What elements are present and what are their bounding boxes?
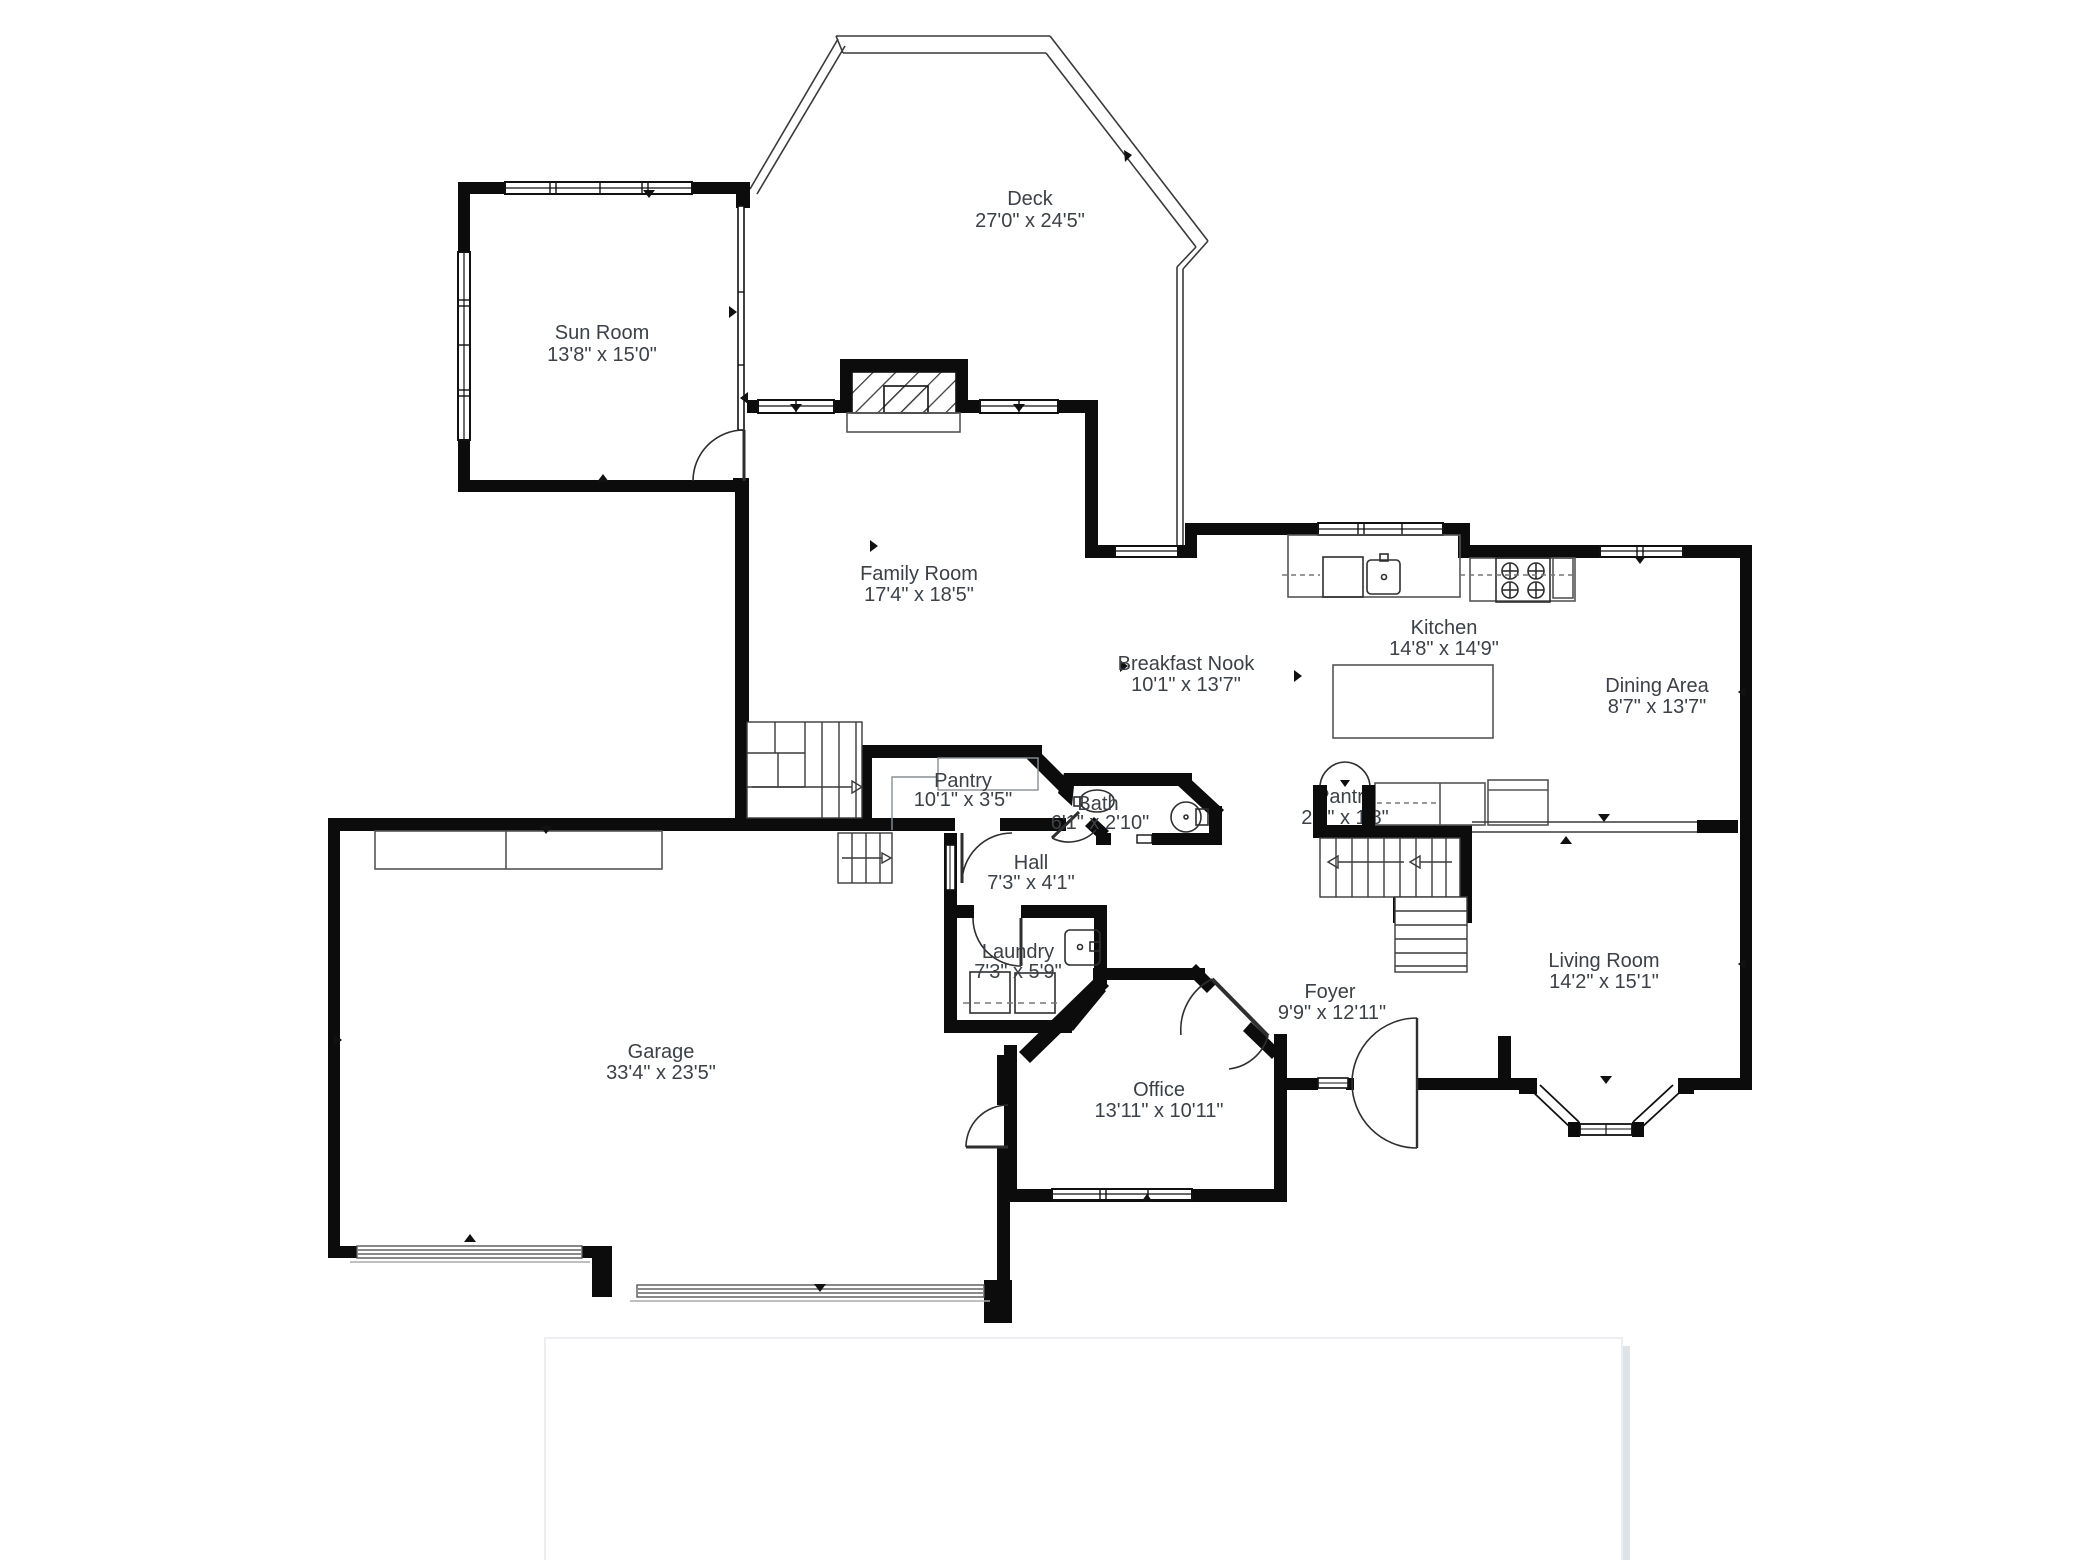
room-label-breakfast-nook: Breakfast Nook bbox=[1118, 653, 1256, 675]
room-dims-breakfast-nook: 10'1" x 13'7" bbox=[1131, 674, 1241, 696]
window-icon bbox=[1318, 523, 1443, 535]
refrigerator-icon bbox=[1488, 780, 1548, 825]
window-icon bbox=[1600, 546, 1683, 557]
room-label-laundry: Laundry bbox=[982, 941, 1054, 963]
bottom-card bbox=[545, 1338, 1630, 1560]
dishwasher-icon bbox=[1323, 557, 1363, 597]
room-dims-hall: 7'3" x 4'1" bbox=[987, 872, 1074, 894]
kitchen-island-icon bbox=[1333, 665, 1493, 738]
window-icon bbox=[505, 182, 692, 194]
double-door-icon bbox=[1181, 979, 1268, 1069]
room-label-garage: Garage bbox=[628, 1041, 695, 1063]
garage-doors bbox=[350, 1246, 990, 1301]
window-icon bbox=[1137, 835, 1152, 843]
room-labels: Deck 27'0" x 24'5" Sun Room 13'8" x 15'0… bbox=[547, 188, 1709, 1122]
room-label-kitchen: Kitchen bbox=[1411, 617, 1478, 639]
room-dims-garage: 33'4" x 23'5" bbox=[606, 1062, 716, 1084]
garage-door-icon bbox=[630, 1285, 990, 1301]
room-label-hall: Hall bbox=[1014, 852, 1048, 874]
window-icon bbox=[946, 845, 955, 890]
walls bbox=[328, 182, 1752, 1323]
direction-markers bbox=[334, 150, 1746, 1292]
room-label-dining-area: Dining Area bbox=[1605, 675, 1709, 697]
kitchen-sink-icon bbox=[1367, 554, 1400, 594]
floor-plan-drawing: Deck 27'0" x 24'5" Sun Room 13'8" x 15'0… bbox=[0, 0, 2080, 1560]
staircase-icon bbox=[747, 722, 862, 818]
door-icon bbox=[966, 1105, 1008, 1147]
room-label-living-room: Living Room bbox=[1548, 950, 1659, 972]
room-label-family-room: Family Room bbox=[860, 563, 978, 585]
room-dims-sun-room: 13'8" x 15'0" bbox=[547, 344, 657, 366]
kitchen-counter bbox=[1375, 780, 1548, 825]
room-label-deck: Deck bbox=[1007, 188, 1054, 210]
staircase-icon bbox=[838, 833, 892, 883]
room-dims-foyer: 9'9" x 12'11" bbox=[1278, 1002, 1386, 1024]
window-icon bbox=[458, 252, 470, 440]
room-label-sun-room: Sun Room bbox=[555, 322, 650, 344]
room-dims-family-room: 17'4" x 18'5" bbox=[864, 584, 974, 606]
window-icon bbox=[1052, 1189, 1192, 1200]
kitchen-counter bbox=[1282, 535, 1460, 597]
window-icon bbox=[1115, 546, 1178, 557]
room-dims-laundry: 7'3" x 5'9" bbox=[974, 961, 1061, 983]
half-wall bbox=[1472, 822, 1697, 832]
door-icon bbox=[693, 430, 744, 481]
room-label-foyer: Foyer bbox=[1304, 981, 1355, 1003]
deck-outline bbox=[750, 36, 1208, 547]
floor-plan-page: Deck 27'0" x 24'5" Sun Room 13'8" x 15'0… bbox=[0, 0, 2080, 1560]
room-dims-living-room: 14'2" x 15'1" bbox=[1549, 971, 1659, 993]
kitchen-counter bbox=[1460, 558, 1575, 602]
room-dims-bath: 6'1" x 2'10" bbox=[1051, 812, 1150, 834]
room-label-office: Office bbox=[1133, 1079, 1185, 1101]
window-icon bbox=[1318, 1078, 1348, 1088]
room-dims-dining-area: 8'7" x 13'7" bbox=[1608, 696, 1707, 718]
stove-icon bbox=[1496, 558, 1550, 602]
bay-window-icon bbox=[1533, 1085, 1680, 1135]
workbench-icon bbox=[375, 831, 662, 869]
room-dims-deck: 27'0" x 24'5" bbox=[975, 210, 1085, 232]
garage-door-icon bbox=[350, 1246, 590, 1262]
front-door-icon bbox=[1352, 1018, 1417, 1148]
fireplace-icon bbox=[847, 372, 960, 432]
room-dims-pantry: 10'1" x 3'5" bbox=[914, 789, 1013, 811]
room-dims-office: 13'11" x 10'11" bbox=[1095, 1100, 1224, 1122]
room-dims-kitchen: 14'8" x 14'9" bbox=[1389, 638, 1499, 660]
